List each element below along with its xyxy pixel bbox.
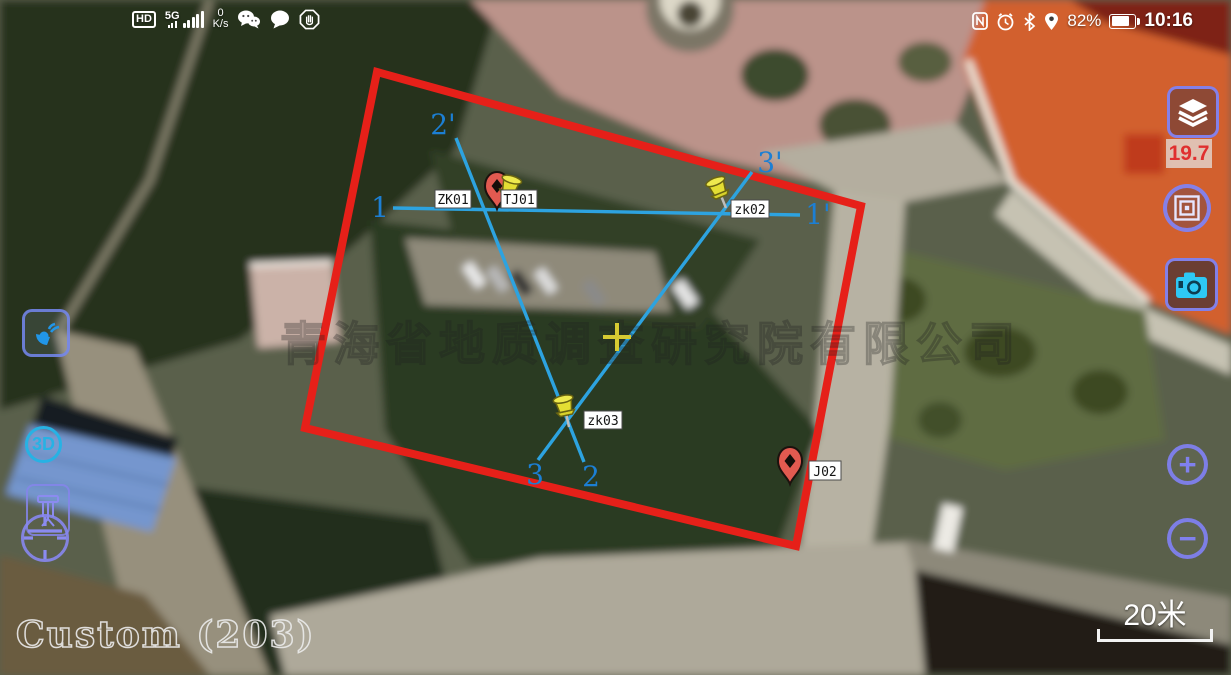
scale-bar-label: 20米 (1095, 590, 1215, 634)
imagery-watermark: 青海省地质调查研究院有限公司 (280, 308, 1022, 374)
map-source-label: Custom (203) (16, 614, 316, 656)
camera-button[interactable] (1165, 258, 1218, 311)
marker-label-text: TJ01 (503, 193, 534, 208)
network-type-label: 5G (165, 11, 180, 21)
scale-bar (1097, 629, 1213, 642)
camera-icon (1175, 271, 1208, 299)
line3-end-label: 3' (757, 146, 783, 179)
nfc-icon (972, 12, 988, 30)
status-bar-right: 82% 10:16 (972, 10, 1193, 32)
line3-start-label: 3 (526, 458, 544, 491)
map-center-crosshair-icon (603, 323, 631, 351)
line1-start-label: 1 (371, 191, 389, 224)
marker-label-tj01: TJ01 (501, 190, 537, 208)
marker-label-j02: J02 (809, 461, 841, 480)
signal-strength-icon: 5G (165, 11, 204, 28)
line1-end-label: 1' (805, 198, 831, 231)
bluetooth-icon (1023, 12, 1036, 31)
concentric-squares-icon (1174, 195, 1200, 221)
line2-start-label: 2 (582, 460, 600, 493)
data-speed: 0 K/s (213, 8, 229, 30)
message-bubble-icon (270, 10, 290, 29)
satellite-dish-icon (31, 318, 61, 348)
status-bar-left: HD 5G 0 K/s (132, 8, 320, 30)
crosshair-icon (24, 517, 66, 559)
location-icon (1044, 12, 1059, 31)
marker-label-zk03: zk03 (584, 411, 622, 429)
battery-icon (1109, 14, 1136, 29)
sim1-signal-bars-icon (183, 11, 204, 28)
wechat-notification-icon (237, 9, 261, 29)
measurement-value-badge: 19.7 (1166, 139, 1212, 168)
clock-time: 10:16 (1144, 10, 1193, 32)
layers-icon (1177, 97, 1209, 127)
hd-badge: HD (132, 11, 156, 28)
overview-frames-button[interactable] (1163, 184, 1211, 232)
layers-button[interactable] (1167, 86, 1219, 138)
marker-label-zk01: ZK01 (435, 190, 471, 208)
zoom-out-button[interactable]: − (1167, 518, 1208, 559)
sim2-signal-icon (168, 21, 177, 28)
locate-me-button[interactable] (21, 514, 69, 562)
data-speed-unit: K/s (213, 19, 229, 30)
marker-label-text: J02 (813, 465, 836, 480)
marker-label-text: zk02 (734, 203, 765, 218)
3d-view-button[interactable]: 3D (25, 426, 62, 463)
marker-label-text: ZK01 (437, 193, 468, 208)
marker-label-zk02: zk02 (731, 200, 769, 218)
gps-satellite-button[interactable] (22, 309, 70, 357)
marker-label-text: zk03 (587, 414, 618, 429)
app-screen: 1 1' 2' 2 3 3' ZK01 TJ01 zk02 (0, 0, 1231, 675)
zoom-in-button[interactable]: + (1167, 444, 1208, 485)
line2-end-label: 2' (430, 108, 456, 141)
battery-percent-label: 82% (1067, 11, 1101, 31)
blocked-hand-app-icon (299, 9, 320, 30)
alarm-clock-icon (996, 12, 1015, 31)
